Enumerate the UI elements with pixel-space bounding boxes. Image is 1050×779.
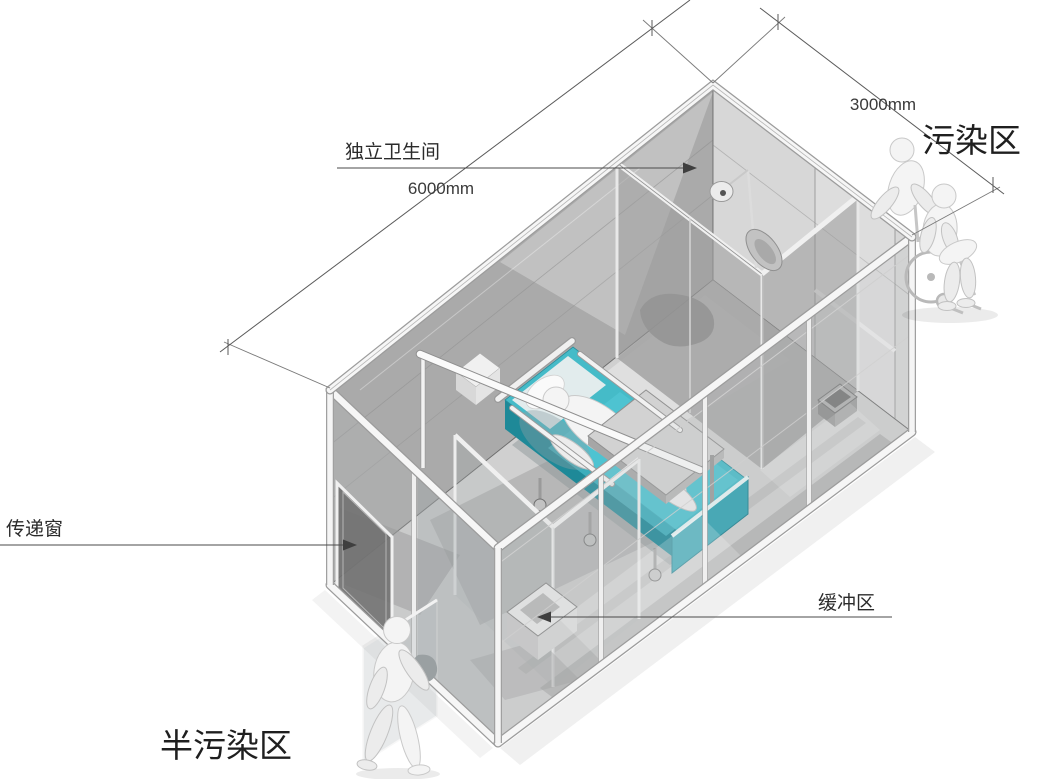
semi-contaminated-zone-label: 半污染区 (160, 727, 292, 764)
length-dimension-label: 6000mm (408, 179, 474, 198)
transfer-window-leader-arrow (0, 540, 357, 551)
isolation-ward-isometric-rendering: 独立卫生间 6000mm 3000mm 污染区 传递窗 缓冲区 半污染区 (0, 0, 1050, 779)
rendering-canvas: 独立卫生间 6000mm 3000mm 污染区 传递窗 缓冲区 半污染区 (0, 0, 1050, 779)
buffer-zone-label: 缓冲区 (818, 592, 875, 614)
transfer-window-label: 传递窗 (6, 518, 63, 540)
width-dimension-label: 3000mm (850, 95, 916, 114)
bathroom-label: 独立卫生间 (345, 141, 440, 163)
contaminated-zone-label: 污染区 (922, 122, 1021, 159)
